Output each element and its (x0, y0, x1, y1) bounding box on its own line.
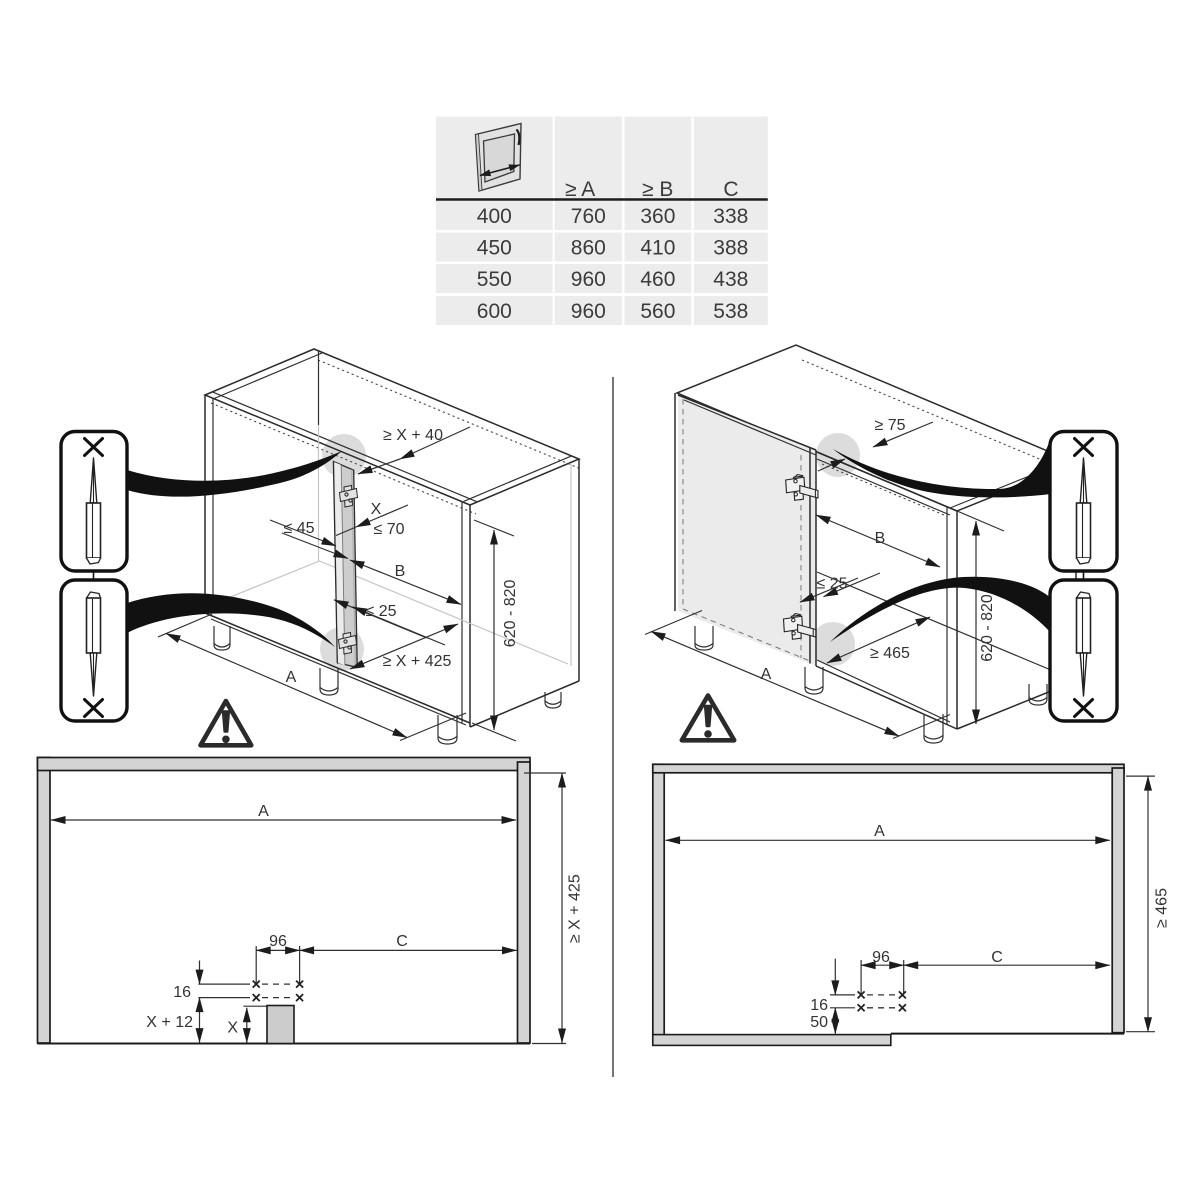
svg-text:B: B (395, 563, 406, 580)
svg-text:≥ 75: ≥ 75 (874, 417, 905, 434)
svg-text:≤ 25: ≤ 25 (816, 576, 847, 593)
svg-text:620 - 820: 620 - 820 (502, 579, 519, 647)
svg-text:A: A (761, 666, 772, 683)
svg-text:≥ X + 425: ≥ X + 425 (566, 874, 583, 943)
svg-text:96: 96 (872, 949, 890, 966)
svg-text:C: C (396, 933, 408, 950)
svg-text:338: 338 (713, 205, 748, 228)
svg-text:388: 388 (713, 237, 748, 260)
svg-text:50: 50 (810, 1014, 828, 1031)
svg-text:620 - 820: 620 - 820 (979, 594, 996, 662)
svg-text:960: 960 (571, 268, 606, 291)
svg-text:16: 16 (173, 984, 191, 1001)
svg-text:400: 400 (477, 205, 512, 228)
svg-text:≤ 45: ≤ 45 (283, 520, 314, 537)
svg-text:450: 450 (477, 237, 512, 260)
svg-text:A: A (286, 669, 297, 686)
svg-text:C: C (991, 949, 1003, 966)
svg-text:960: 960 (571, 300, 606, 323)
svg-text:≤ 70: ≤ 70 (373, 521, 404, 538)
svg-text:A: A (258, 803, 269, 820)
svg-text:C: C (723, 178, 738, 201)
svg-text:410: 410 (640, 237, 675, 260)
svg-text:≥ X + 40: ≥ X + 40 (383, 427, 443, 444)
svg-text:≥ 465: ≥ 465 (1154, 888, 1171, 928)
svg-text:16: 16 (810, 997, 828, 1014)
svg-text:360: 360 (640, 205, 675, 228)
svg-text:≥ X + 425: ≥ X + 425 (383, 653, 452, 670)
svg-text:438: 438 (713, 268, 748, 291)
svg-text:760: 760 (571, 205, 606, 228)
svg-text:600: 600 (477, 300, 512, 323)
svg-text:X + 12: X + 12 (146, 1014, 193, 1031)
svg-text:560: 560 (640, 300, 675, 323)
svg-text:860: 860 (571, 237, 606, 260)
svg-text:X: X (227, 1020, 238, 1037)
svg-text:B: B (875, 530, 886, 547)
svg-text:550: 550 (477, 268, 512, 291)
svg-text:96: 96 (269, 933, 287, 950)
svg-text:≥ 465: ≥ 465 (870, 645, 910, 662)
svg-text:≥ B: ≥ B (642, 178, 673, 201)
svg-text:460: 460 (640, 268, 675, 291)
svg-text:A: A (874, 823, 885, 840)
svg-text:538: 538 (713, 300, 748, 323)
svg-text:≥ A: ≥ A (565, 178, 595, 201)
svg-text:X: X (371, 501, 382, 518)
svg-text:≤ 25: ≤ 25 (365, 603, 396, 620)
